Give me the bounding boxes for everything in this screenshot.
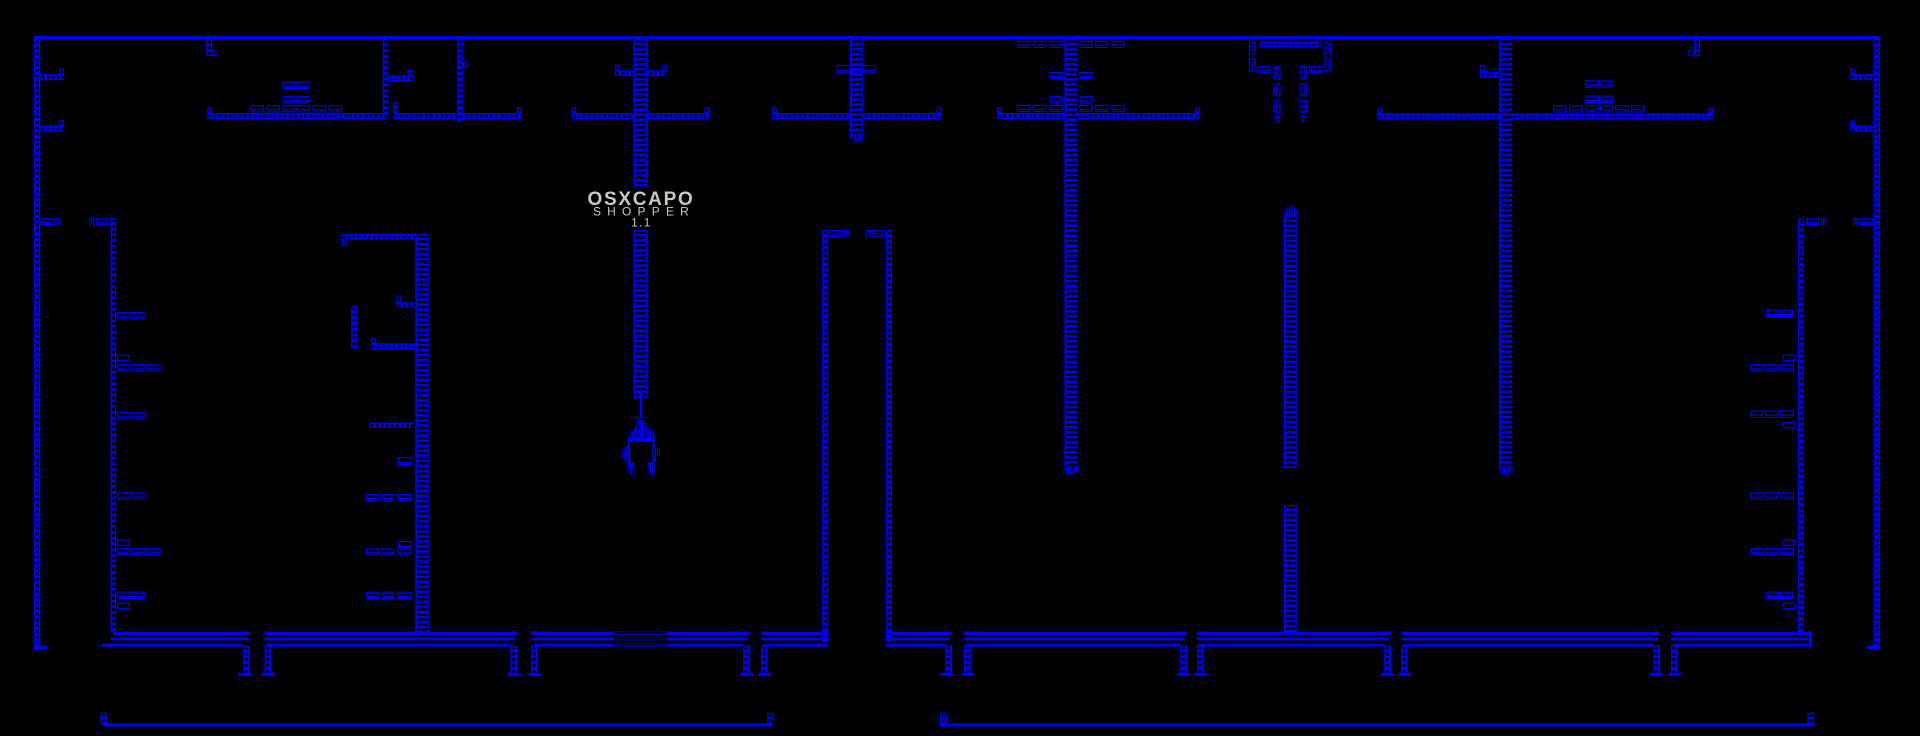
svg-text:SHOPPER: SHOPPER — [593, 205, 695, 219]
svg-text:1.1: 1.1 — [631, 218, 652, 230]
